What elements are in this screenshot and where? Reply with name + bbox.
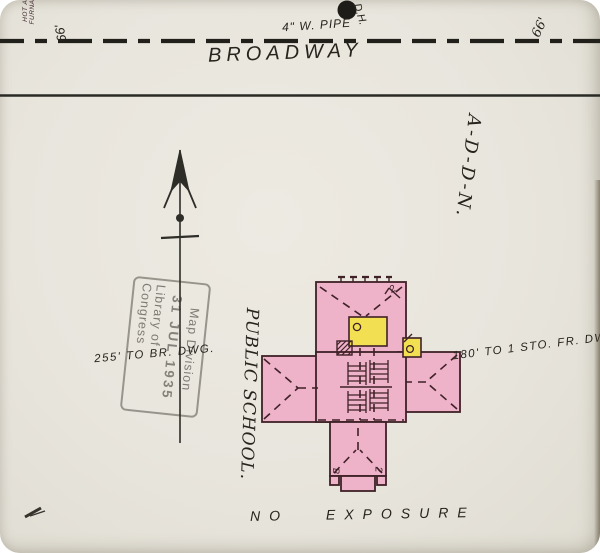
roof-hip-lines xyxy=(264,287,457,473)
street-width-left-label: 66' xyxy=(52,24,70,43)
building-left-wing xyxy=(262,356,332,422)
scan-edge-shadow xyxy=(594,180,600,553)
building-right-wing xyxy=(398,352,460,412)
water-pipe-label: 4" W. PIPE xyxy=(282,16,352,35)
furnace-room xyxy=(349,317,387,346)
ink-smudge-mark xyxy=(25,508,45,517)
stair-ladders xyxy=(348,360,388,413)
side-chimney-circle-icon xyxy=(407,346,414,353)
hatched-stairs xyxy=(337,341,352,355)
story-marker-bottom-left: B xyxy=(331,468,341,474)
chimney-slash-mark xyxy=(404,334,412,342)
side-chimney-block xyxy=(403,338,421,357)
furnace-label-line1: HOT AIR xyxy=(22,0,29,36)
hot-air-furnace-label: HOT AIR FURNACE xyxy=(22,0,36,36)
story-marker-bottom-right: 2 xyxy=(372,467,383,473)
building-bottom-foot-right xyxy=(377,476,386,485)
story-marker-top: 2 xyxy=(388,283,398,295)
chimney-circle-icon xyxy=(353,323,360,330)
building-bottom-foot-left xyxy=(330,476,339,485)
map-linework xyxy=(0,0,600,553)
distance-note-right: 180' TO 1 STO. FR. DWG. xyxy=(452,330,600,363)
building-entrance-porch xyxy=(341,476,375,491)
street-name-label: BROADWAY xyxy=(208,39,364,67)
building-center xyxy=(316,352,406,422)
street-width-right-label: 66' xyxy=(529,15,551,40)
public-school-label: PUBLIC SCHOOL. xyxy=(236,304,262,485)
addition-label: A-D-D-N. xyxy=(450,106,485,228)
parapet-crenellation xyxy=(338,277,392,282)
school-building-footprint xyxy=(262,282,460,491)
no-exposure-label: NO EXPOSURE xyxy=(250,504,476,524)
furnace-label-line2: FURNACE xyxy=(29,0,36,36)
furnace-and-chimney xyxy=(349,317,421,357)
map-sheet: Map Division 31 JUL 1935 Library of Cong… xyxy=(0,0,600,553)
double-hydrant-label: D.H. xyxy=(351,2,369,27)
